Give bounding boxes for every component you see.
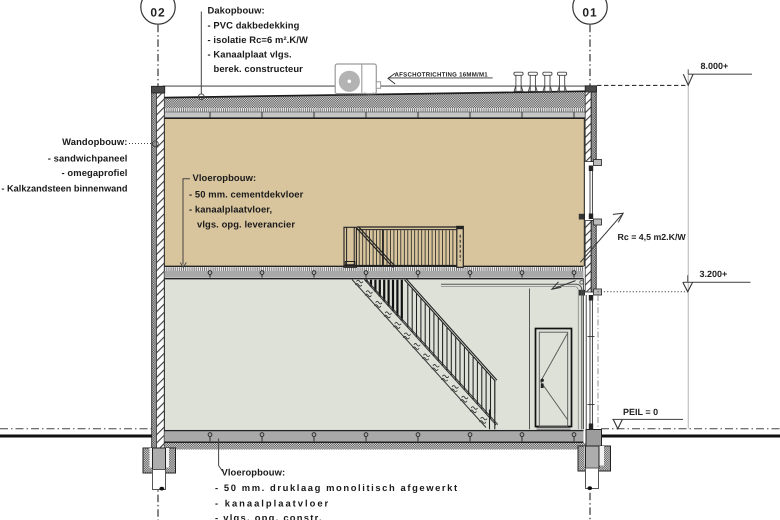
svg-text:berek. constructeur: berek. constructeur — [214, 63, 304, 74]
svg-text:PEIL = 0: PEIL = 0 — [623, 407, 658, 417]
svg-text:- Kanaalplaat vlgs.: - Kanaalplaat vlgs. — [208, 48, 292, 59]
svg-text:Vloeropbouw:: Vloeropbouw: — [222, 467, 286, 478]
svg-text:AFSCHOTRICHTING 16MM/M1: AFSCHOTRICHTING 16MM/M1 — [395, 72, 489, 79]
svg-text:3.200+: 3.200+ — [700, 269, 728, 279]
svg-text:vlgs. opg. leverancier: vlgs. opg. leverancier — [197, 219, 295, 230]
svg-text:01: 01 — [582, 6, 597, 20]
svg-text:Rc = 4,5 m2.K/W: Rc = 4,5 m2.K/W — [618, 232, 687, 242]
svg-text:- sandwichpaneel: - sandwichpaneel — [48, 153, 128, 164]
svg-text:- vlgs. opg. constr.: - vlgs. opg. constr. — [215, 512, 323, 520]
svg-text:- omegaprofiel: - omegaprofiel — [62, 167, 128, 178]
svg-text:- kanaalplaatvloer,: - kanaalplaatvloer, — [189, 203, 272, 214]
svg-text:02: 02 — [150, 6, 165, 20]
svg-text:8.000+: 8.000+ — [701, 61, 729, 71]
svg-text:- PVC dakbedekking: - PVC dakbedekking — [208, 19, 300, 30]
svg-text:- isolatie Rc=6 m².K/W: - isolatie Rc=6 m².K/W — [208, 34, 308, 45]
svg-text:Wandopbouw:: Wandopbouw: — [62, 136, 127, 147]
svg-text:- 50 mm. cementdekvloer: - 50 mm. cementdekvloer — [189, 189, 304, 200]
svg-text:Vloeropbouw:: Vloeropbouw: — [193, 172, 257, 183]
svg-text:- Kalkzandsteen binnenwand: - Kalkzandsteen binnenwand — [1, 183, 127, 193]
svg-text:- kanaalplaatvloer: - kanaalplaatvloer — [215, 498, 330, 509]
svg-text:Dakopbouw:: Dakopbouw: — [208, 5, 265, 16]
svg-text:- 50 mm. druklaag monolitisch: - 50 mm. druklaag monolitisch afgewerkt — [215, 482, 459, 493]
